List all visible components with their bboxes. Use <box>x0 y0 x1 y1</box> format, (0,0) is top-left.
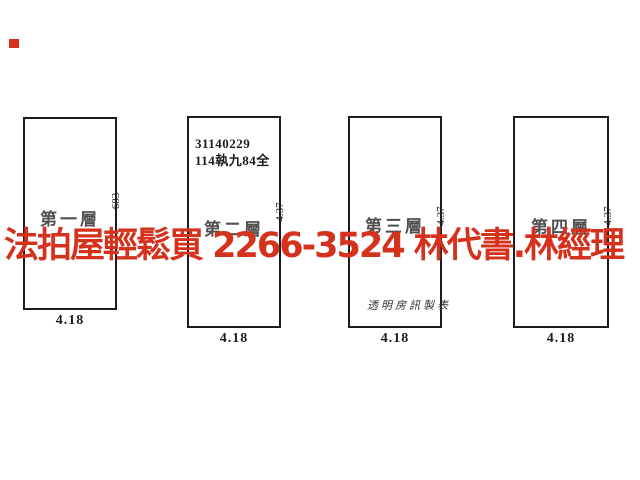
case-number-line1: 31140229 <box>195 135 270 152</box>
case-number-annotation: 31140229 114執九84全 <box>195 135 270 169</box>
red-corner-mark <box>9 39 19 48</box>
case-number-line2: 114執九84全 <box>195 152 270 169</box>
floor-3-width-dimension: 4.18 <box>350 331 440 347</box>
floor-1-outline: 第一層 683 4.18 <box>23 117 117 310</box>
red-ad-watermark: 法拍屋輕鬆買 2266-3524 林代書.林經理 <box>0 217 640 268</box>
floorplan-sheet: 第一層 683 4.18 31140229 114執九84全 第二層 4.37 … <box>0 0 640 480</box>
floor-1-depth-dimension: 683 <box>110 186 122 216</box>
floor-2-width-dimension: 4.18 <box>189 331 279 347</box>
producer-credit: 透明房訊製表 <box>367 297 451 313</box>
floor-1-width-dimension: 4.18 <box>25 313 115 329</box>
floor-4-width-dimension: 4.18 <box>515 331 607 347</box>
